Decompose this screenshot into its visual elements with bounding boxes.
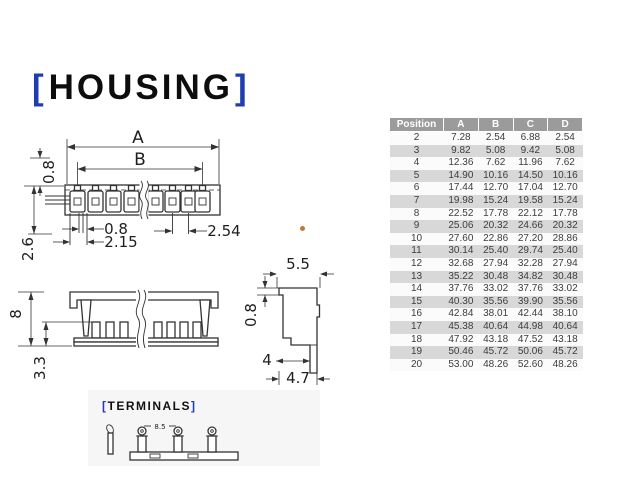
table-cell: 34.82 [513, 271, 548, 284]
dim-height: 8 [7, 292, 72, 346]
table-cell: 39.90 [513, 296, 548, 309]
table-row: 27.282.546.882.54 [390, 132, 583, 145]
table-cell: 5 [390, 170, 444, 183]
table-row: 1027.6022.8627.2028.86 [390, 233, 583, 246]
table-cell: 45.38 [444, 321, 479, 334]
table-cell: 25.40 [548, 245, 583, 258]
dim-tab-height: 0.8 [24, 148, 64, 196]
dim-label-tab-height: 0.8 [40, 160, 58, 184]
table-cell: 8 [390, 208, 444, 221]
table-cell: 2 [390, 132, 444, 145]
table-cell: 14.50 [513, 170, 548, 183]
table-row: 1335.2230.4834.8230.48 [390, 271, 583, 284]
table-cell: 7.62 [548, 157, 583, 170]
housing-profile-outline [279, 288, 320, 373]
housing-title: [HOUSING] [30, 68, 252, 108]
table-header-cell: B [478, 118, 513, 132]
datasheet-image: [HOUSING] A B [0, 0, 640, 480]
table-cell: 27.20 [513, 233, 548, 246]
table-cell: 19.98 [444, 195, 479, 208]
table-header-cell: C [513, 118, 548, 132]
table-cell: 17 [390, 321, 444, 334]
table-cell: 20.32 [548, 220, 583, 233]
dim-pitch: 2.54 [154, 213, 241, 240]
table-row: 514.9010.1614.5010.16 [390, 170, 583, 183]
table-cell: 50.46 [444, 346, 479, 359]
table-header-cell: D [548, 118, 583, 132]
table-cell: 35.56 [548, 296, 583, 309]
table-cell: 38.01 [478, 308, 513, 321]
table-row: 617.4412.7017.0412.70 [390, 182, 583, 195]
table-row: 925.0620.3224.6620.32 [390, 220, 583, 233]
strip-terminal [136, 427, 148, 452]
table-row: 1130.1425.4029.7425.40 [390, 245, 583, 258]
table-cell: 9 [390, 220, 444, 233]
strip-terminal [206, 427, 218, 452]
dim-label-pitch: 2.54 [207, 222, 240, 240]
table-cell: 37.76 [444, 283, 479, 296]
terminals-drawing: 8.5 [98, 420, 258, 464]
table-cell: 43.18 [478, 334, 513, 347]
table-cell: 40.64 [478, 321, 513, 334]
dim-label-side-height: 2.6 [19, 237, 37, 261]
table-cell: 32.28 [513, 258, 548, 271]
dim-label-terminal-pitch: 8.5 [154, 423, 165, 431]
strip-terminal [172, 427, 184, 452]
table-cell: 35.56 [478, 296, 513, 309]
table-cell: 3 [390, 145, 444, 158]
table-cell: 28.86 [548, 233, 583, 246]
table-cell: 22.12 [513, 208, 548, 221]
table-cell: 29.74 [513, 245, 548, 258]
table-row: 2053.0048.2652.6048.26 [390, 359, 583, 372]
table-row: 1540.3035.5639.9035.56 [390, 296, 583, 309]
housing-title-bracket-open: [ [32, 68, 47, 107]
table-cell: 38.10 [548, 308, 583, 321]
table-cell: 12.36 [444, 157, 479, 170]
table-cell: 48.26 [548, 359, 583, 372]
table-cell: 10 [390, 233, 444, 246]
break-lines [136, 290, 148, 348]
housing-front-outline [45, 181, 220, 219]
table-cell: 7.62 [478, 157, 513, 170]
terminals-title-text: TERMINALS [108, 399, 192, 413]
housing-title-text: HOUSING [49, 68, 233, 107]
terminals-section: [TERMINALS] [88, 390, 320, 466]
terminals-title-bracket-close: ] [191, 399, 197, 413]
dim-label-inner-depth: 3.3 [31, 356, 49, 380]
dim-terminal-pitch: 8.5 [144, 423, 176, 431]
table-cell: 42.84 [444, 308, 479, 321]
dim-side-height: 2.6 [19, 186, 52, 261]
table-cell: 47.92 [444, 334, 479, 347]
dim-label-notch: 0.8 [242, 303, 260, 327]
table-cell: 43.18 [548, 334, 583, 347]
table-cell: 4 [390, 157, 444, 170]
table-cell: 27.60 [444, 233, 479, 246]
table-cell: 30.14 [444, 245, 479, 258]
table-cell: 10.16 [548, 170, 583, 183]
table-cell: 9.82 [444, 145, 479, 158]
table-cell: 40.64 [548, 321, 583, 334]
table-cell: 15 [390, 296, 444, 309]
table-cell: 47.52 [513, 334, 548, 347]
table-cell: 15.24 [548, 195, 583, 208]
table-cell: 20 [390, 359, 444, 372]
table-row: 1642.8438.0142.4438.10 [390, 308, 583, 321]
table-cell: 12 [390, 258, 444, 271]
table-cell: 5.08 [548, 145, 583, 158]
table-cell: 7 [390, 195, 444, 208]
table-row: 1437.7633.0237.7633.02 [390, 283, 583, 296]
terminal-strip [130, 427, 238, 460]
table-cell: 33.02 [548, 283, 583, 296]
table-cell: 52.60 [513, 359, 548, 372]
table-row: 412.367.6211.967.62 [390, 157, 583, 170]
table-cell: 16 [390, 308, 444, 321]
table-cell: 37.76 [513, 283, 548, 296]
side-section-drawing: 8 [14, 280, 244, 394]
table-row: 1745.3840.6444.9840.64 [390, 321, 583, 334]
table-cell: 15.24 [478, 195, 513, 208]
table-cell: 45.72 [478, 346, 513, 359]
table-cell: 12.70 [548, 182, 583, 195]
dimensions-table-wrap: PositionABCD27.282.546.882.5439.825.089.… [389, 117, 583, 371]
table-row: 1950.4645.7250.0645.72 [390, 346, 583, 359]
table-row: 1847.9243.1847.5243.18 [390, 334, 583, 347]
table-cell: 17.78 [548, 208, 583, 221]
table-cell: 44.98 [513, 321, 548, 334]
table-cell: 12.70 [478, 182, 513, 195]
table-cell: 17.04 [513, 182, 548, 195]
dim-top-width: 5.5 [263, 255, 334, 288]
table-cell: 14 [390, 283, 444, 296]
table-cell: 11.96 [513, 157, 548, 170]
table-cell: 6.88 [513, 132, 548, 145]
table-cell: 32.68 [444, 258, 479, 271]
table-cell: 45.72 [548, 346, 583, 359]
table-cell: 2.54 [548, 132, 583, 145]
table-cell: 19.58 [513, 195, 548, 208]
table-cell: 18 [390, 334, 444, 347]
front-view-drawing: A B [20, 122, 242, 264]
table-cell: 10.16 [478, 170, 513, 183]
dim-base-width: 4 [262, 347, 310, 369]
dim-label-first-offset: 2.15 [104, 233, 137, 251]
table-cell: 42.44 [513, 308, 548, 321]
dim-overall-depth: 4.7 [266, 347, 330, 387]
table-cell: 27.94 [478, 258, 513, 271]
table-row: 1232.6827.9432.2827.94 [390, 258, 583, 271]
dim-label-height: 8 [7, 309, 25, 319]
table-cell: 30.48 [478, 271, 513, 284]
table-cell: 7.28 [444, 132, 479, 145]
table-cell: 6 [390, 182, 444, 195]
dim-label-a: A [132, 128, 144, 148]
table-cell: 20.32 [478, 220, 513, 233]
table-cell: 5.08 [478, 145, 513, 158]
table-cell: 11 [390, 245, 444, 258]
table-cell: 30.48 [548, 271, 583, 284]
scan-artifact-dot [300, 226, 305, 231]
table-row: 39.825.089.425.08 [390, 145, 583, 158]
table-header-cell: A [444, 118, 479, 132]
table-cell: 19 [390, 346, 444, 359]
table-cell: 25.40 [478, 245, 513, 258]
table-cell: 22.52 [444, 208, 479, 221]
table-cell: 17.78 [478, 208, 513, 221]
table-cell: 17.44 [444, 182, 479, 195]
table-cell: 24.66 [513, 220, 548, 233]
table-cell: 40.30 [444, 296, 479, 309]
table-row: 719.9815.2419.5815.24 [390, 195, 583, 208]
table-cell: 9.42 [513, 145, 548, 158]
table-cell: 22.86 [478, 233, 513, 246]
single-terminal [105, 424, 115, 454]
table-header-row: PositionABCD [390, 118, 583, 132]
table-cell: 25.06 [444, 220, 479, 233]
table-cell: 13 [390, 271, 444, 284]
table-cell: 53.00 [444, 359, 479, 372]
table-cell: 14.90 [444, 170, 479, 183]
dim-label-overall-depth: 4.7 [286, 369, 310, 387]
table-cell: 48.26 [478, 359, 513, 372]
table-cell: 50.06 [513, 346, 548, 359]
terminals-title: [TERMINALS] [102, 399, 197, 413]
housing-section-outline [70, 290, 218, 348]
profile-view-drawing: 5.5 0.8 4 4.7 [243, 243, 365, 393]
dim-label-base-width: 4 [262, 351, 272, 369]
table-cell: 35.22 [444, 271, 479, 284]
dim-label-b: B [134, 150, 146, 170]
table-header-cell: Position [390, 118, 444, 132]
dimensions-table: PositionABCD27.282.546.882.5439.825.089.… [389, 117, 583, 371]
table-cell: 27.94 [548, 258, 583, 271]
dim-label-top-width: 5.5 [286, 255, 310, 273]
table-cell: 2.54 [478, 132, 513, 145]
table-cell: 33.02 [478, 283, 513, 296]
table-row: 822.5217.7822.1217.78 [390, 208, 583, 221]
break-lines [140, 181, 149, 219]
housing-title-bracket-close: ] [235, 68, 250, 107]
